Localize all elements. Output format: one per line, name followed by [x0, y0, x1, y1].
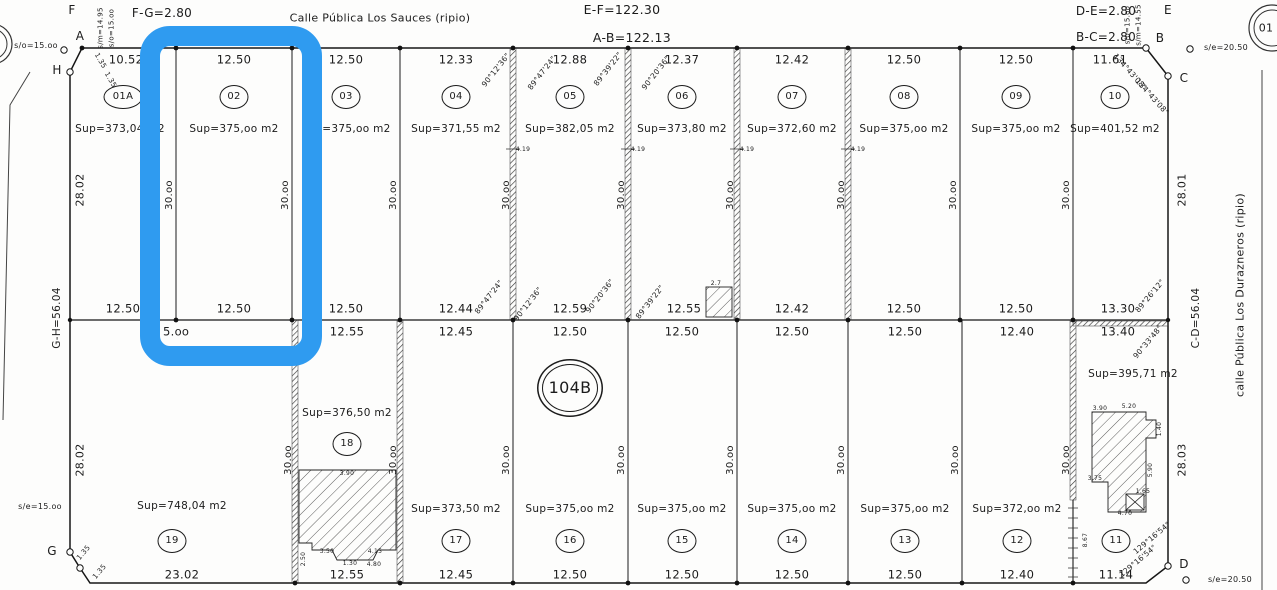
bldg11-dim-5: 4.70: [1118, 511, 1133, 517]
dim-depth-bottom-3: 30.oo: [502, 445, 512, 475]
lot-13-number: 13: [891, 529, 920, 553]
lot-09-number: 09: [1002, 85, 1031, 109]
adjacent-parcel-number: 01: [1259, 23, 1274, 34]
offset-e-2: s/m=14.55: [1136, 4, 1143, 45]
dim-e-f: E-F=122.30: [584, 4, 661, 17]
vertex-c-label: C: [1180, 72, 1189, 84]
dim-lot-05-back: 12.59: [553, 303, 587, 315]
bldg18-dim-5: 4.15: [368, 549, 383, 555]
lot-07-number: 07: [778, 85, 807, 109]
lot-12-area: Sup=372,oo m2: [972, 504, 1061, 515]
bldg11-dim-6: 1.65: [1136, 489, 1151, 495]
lot-01A-area: Sup=373,04 m2: [75, 124, 165, 135]
bldg11-dim-1: 3.90: [1093, 406, 1108, 412]
dim-lot-16-front: 12.50: [553, 569, 587, 581]
dim-lot-01A-front: 10.52: [109, 54, 143, 66]
dim-lot-15-back: 12.50: [665, 326, 699, 338]
dim-lot-12-back: 12.40: [1000, 326, 1034, 338]
offset-top-right: s/e=20.50: [1204, 44, 1248, 52]
dim-lot-19-back-partial: 5.oo: [163, 326, 189, 338]
dim-lot-08-front: 12.50: [887, 54, 921, 66]
lot-02-number: 02: [220, 85, 249, 109]
street-right-label: calle Pública Los Durazneros (ripio): [1235, 193, 1246, 397]
dim-lot-14-back: 12.50: [775, 326, 809, 338]
lot-01A-number: 01A: [104, 85, 143, 109]
lot-03-area: Sup=375,oo m2: [301, 124, 390, 135]
dim-lot-03-back: 12.50: [329, 303, 363, 315]
dim-depth-bottom-2: 30.oo: [389, 445, 399, 475]
dim-lot-07-front: 12.42: [775, 54, 809, 66]
street-top-label: Calle Pública Los Sauces (ripio): [290, 13, 471, 24]
lot-06-area: Sup=373,80 m2: [637, 124, 727, 135]
dim-lot-13-front: 12.50: [888, 569, 922, 581]
dim-lot-19-front: 23.02: [165, 569, 199, 581]
building-lot18: [299, 470, 396, 560]
dim-lot-02-front: 12.50: [217, 54, 251, 66]
bldg18-dim-3: 3.50: [320, 549, 335, 555]
lot-07-area: Sup=372,60 m2: [747, 124, 837, 135]
dim-lot-11-back: 13.40: [1101, 326, 1135, 338]
lot-09-area: Sup=375,oo m2: [971, 124, 1060, 135]
bldg11-dim-3: 1.40: [1157, 422, 1163, 437]
bldg18-dim-4: 1.30: [343, 561, 358, 567]
dim-lot-17-back: 12.45: [439, 326, 473, 338]
dim-8-67: 8.67: [1083, 533, 1089, 548]
dim-lot-04-front: 12.33: [439, 54, 473, 66]
vertex-a-label: A: [76, 30, 85, 42]
tick-dim-3: 4.19: [740, 147, 755, 153]
lot-16-number: 16: [556, 529, 585, 553]
dim-depth-bottom-1: 30.oo: [284, 445, 294, 475]
lot-10-number: 10: [1101, 85, 1130, 109]
dim-depth-top-2: 30.oo: [281, 180, 291, 210]
dim-left-lower: 28.02: [75, 444, 86, 477]
dim-lot-15-front: 12.50: [665, 569, 699, 581]
dim-lot-09-front: 12.50: [999, 54, 1033, 66]
lot-04-area: Sup=371,55 m2: [411, 124, 501, 135]
offset-e-1: s/o=15.oo: [1125, 6, 1132, 45]
dim-lot-07-back: 12.42: [775, 303, 809, 315]
dim-right-lower: 28.03: [1177, 444, 1188, 477]
lot-18-area: Sup=376,50 m2: [302, 408, 392, 419]
vertex-f-label: F: [68, 4, 75, 16]
bldg11-dim-2: 5.20: [1122, 404, 1137, 410]
lot-13-area: Sup=375,oo m2: [860, 504, 949, 515]
building-mejora-lot06: [706, 287, 732, 317]
offset-top-left: s/o=15.oo: [14, 42, 58, 50]
lot-18-number: 18: [333, 432, 362, 456]
dim-lot-02-back: 12.50: [217, 303, 251, 315]
cadastral-plan: FF-G=2.80H-Calle Pública Los Sauces (rip…: [0, 0, 1277, 590]
dim-depth-bottom-4: 30.oo: [617, 445, 627, 475]
lot-19-number: 19: [158, 529, 187, 553]
dim-lot-05-front: 12.88: [553, 54, 587, 66]
bldg11-dim-7: 5.90: [1148, 463, 1154, 478]
bldg18-dim-1: 3.90: [340, 471, 355, 477]
block-number: 104B: [542, 364, 598, 412]
lot-19-area: Sup=748,04 m2: [137, 501, 227, 512]
dim-depth-top-5: 30.oo: [617, 180, 627, 210]
lot-17-number: 17: [442, 529, 471, 553]
dim-lot-12-front: 12.40: [1000, 569, 1034, 581]
dim-f-g: F-G=2.80: [132, 7, 192, 19]
tick-dim-2: 4.19: [631, 147, 646, 153]
dim-c-d: C-D=56.04: [1191, 288, 1202, 349]
dim-h-a-partial: H-: [192, 27, 206, 39]
dim-lot-13-back: 12.50: [888, 326, 922, 338]
lot-05-area: Sup=382,05 m2: [525, 124, 615, 135]
lot-08-area: Sup=375,oo m2: [859, 124, 948, 135]
dim-depth-top-4: 30.oo: [502, 180, 512, 210]
lot-16-area: Sup=375,oo m2: [525, 504, 614, 515]
lot-10-area: Sup=401,52 m2: [1070, 124, 1160, 135]
bldg18-dim-2: 2.50: [301, 552, 307, 567]
dim-right-upper: 28.01: [1177, 174, 1188, 207]
dim-depth-top-1: 30.oo: [165, 180, 175, 210]
offset-f-2: s/o=15.oo: [109, 9, 116, 48]
dim-depth-bottom-7: 30.oo: [951, 445, 961, 475]
vertex-e-label: E: [1164, 4, 1172, 16]
offset-f-1: s/m=14.95: [98, 7, 105, 48]
dim-lot-04-back: 12.44: [439, 303, 473, 315]
dim-depth-top-7: 30.oo: [837, 180, 847, 210]
dim-lot-01A-back: 12.50: [106, 303, 140, 315]
dim-lot-18-front: 12.55: [330, 569, 364, 581]
lot-05-number: 05: [556, 85, 585, 109]
bldg11-dim-4: 3.75: [1088, 476, 1103, 482]
dim-depth-bottom-8: 30.oo: [1062, 445, 1072, 475]
lot-11-number: 11: [1102, 529, 1131, 553]
dim-lot-18-back: 12.55: [330, 326, 364, 338]
dim-lot-03-front: 12.50: [329, 54, 363, 66]
lot-06-number: 06: [668, 85, 697, 109]
tick-dim-1: 4.19: [516, 147, 531, 153]
offset-bottom-right: s/e=20.50: [1208, 576, 1252, 584]
offset-bottom-left: s/e=15.oo: [18, 503, 62, 511]
dim-depth-bottom-5: 30.oo: [726, 445, 736, 475]
dim-lot-16-back: 12.50: [553, 326, 587, 338]
lot-17-area: Sup=373,50 m2: [411, 504, 501, 515]
vertex-b-label: B: [1156, 32, 1165, 44]
dim-left-upper: 28.02: [75, 174, 86, 207]
dim-lot-09-back: 12.50: [999, 303, 1033, 315]
dim-lot-06-back: 12.55: [667, 303, 701, 315]
dim-lot-14-front: 12.50: [775, 569, 809, 581]
vertex-h-label: H: [52, 64, 61, 76]
lot-12-number: 12: [1003, 529, 1032, 553]
bldg18-dim-6: 4.80: [367, 562, 382, 568]
dim-a-b: A-B=122.13: [593, 32, 671, 45]
mejora-dim: 2.7: [711, 281, 721, 287]
tick-dim-4: 4.19: [851, 147, 866, 153]
lot-14-area: Sup=375,oo m2: [747, 504, 836, 515]
lot-03-number: 03: [332, 85, 361, 109]
dim-lot-17-front: 12.45: [439, 569, 473, 581]
lot-11-area: Sup=395,71 m2: [1088, 369, 1178, 380]
dim-depth-top-6: 30.oo: [726, 180, 736, 210]
lot-15-area: Sup=375,oo m2: [637, 504, 726, 515]
lot-15-number: 15: [668, 529, 697, 553]
dim-depth-top-9: 30.oo: [1062, 180, 1072, 210]
dim-g-h: G-H=56.04: [52, 287, 63, 348]
lot-14-number: 14: [778, 529, 807, 553]
lot-04-number: 04: [442, 85, 471, 109]
vertex-g-label: G: [47, 545, 57, 557]
dim-depth-top-8: 30.oo: [949, 180, 959, 210]
dim-lot-08-back: 12.50: [887, 303, 921, 315]
vertex-d-label: D: [1179, 558, 1189, 570]
dim-depth-top-3: 30.oo: [389, 180, 399, 210]
lot-08-number: 08: [890, 85, 919, 109]
lot-02-area: Sup=375,oo m2: [189, 124, 278, 135]
dim-lot-10-back: 13.30: [1101, 303, 1135, 315]
dim-depth-bottom-6: 30.oo: [837, 445, 847, 475]
